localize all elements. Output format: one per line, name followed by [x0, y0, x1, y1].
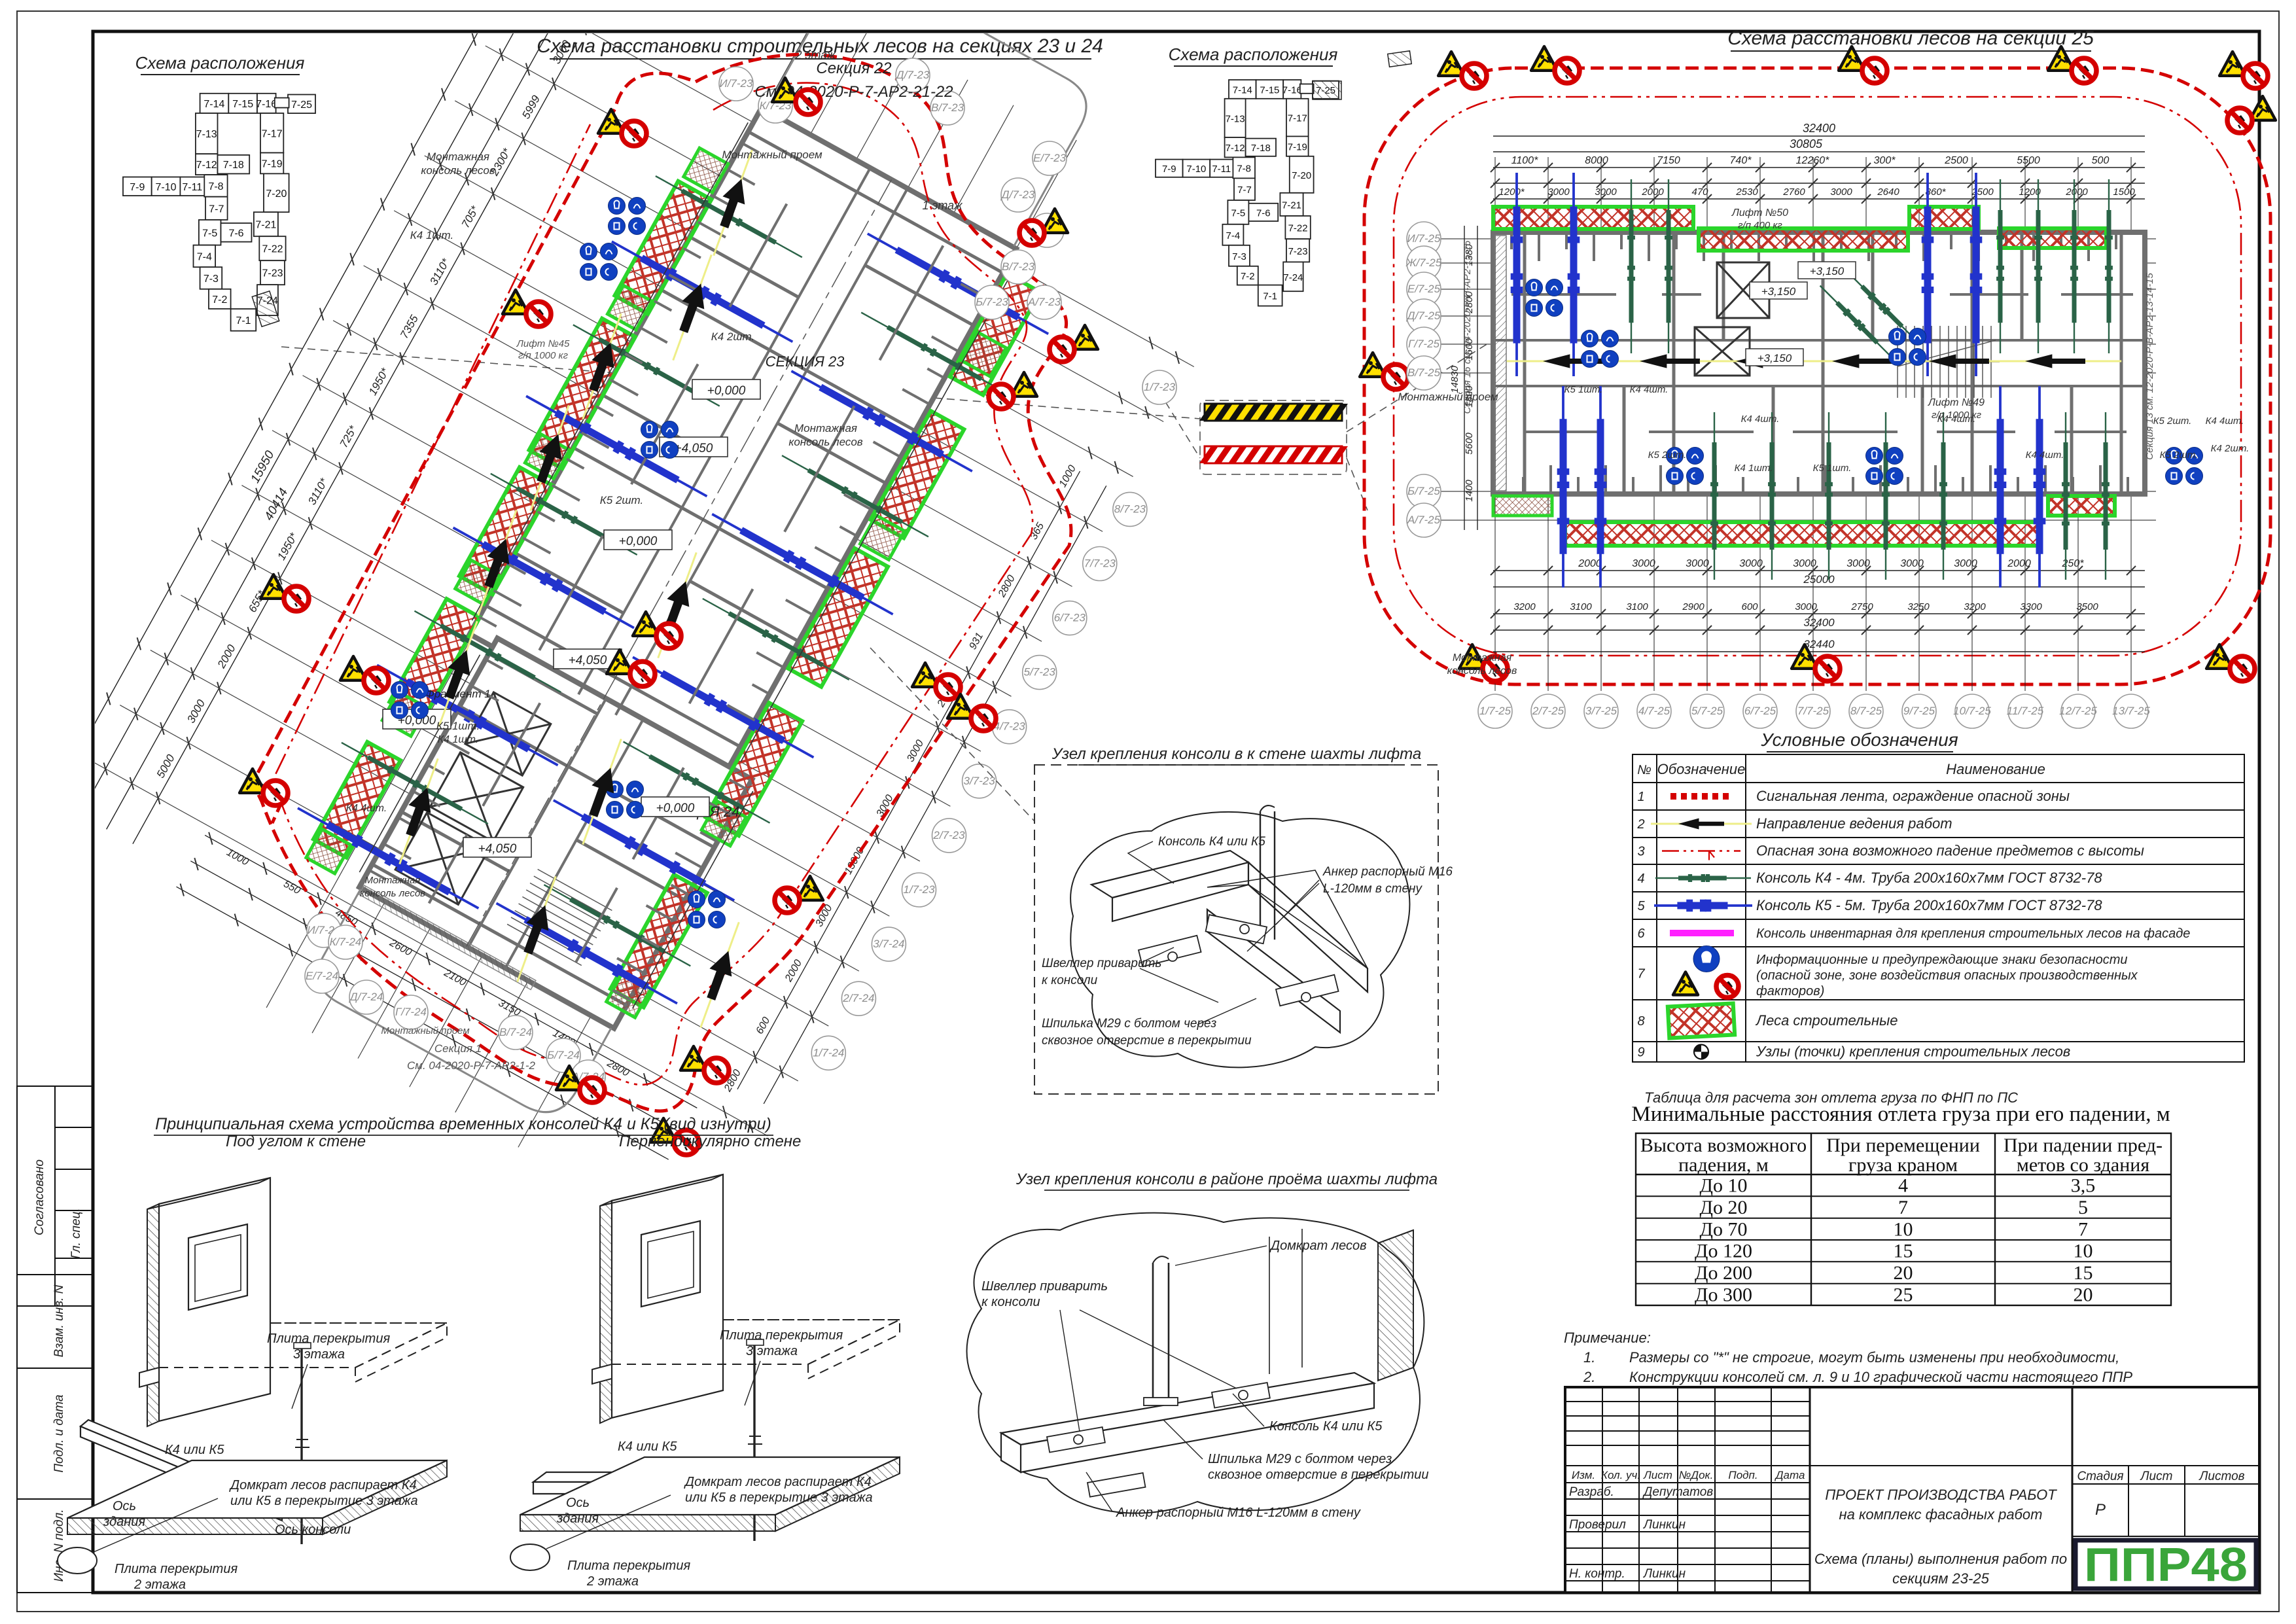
svg-text:Разраб.: Разраб. [1569, 1485, 1614, 1499]
svg-text:7-5: 7-5 [1231, 207, 1246, 219]
svg-text:Д/7-25: Д/7-25 [1406, 309, 1441, 322]
svg-text:К4 1шт.: К4 1шт. [438, 734, 479, 745]
svg-text:2750: 2750 [1850, 601, 1873, 612]
svg-text:13/7-25: 13/7-25 [2112, 705, 2150, 717]
svg-text:5500: 5500 [2017, 155, 2040, 166]
svg-text:К5 1шт.: К5 1шт. [1564, 384, 1603, 395]
svg-text:Под углом к стене: Под углом к стене [226, 1133, 366, 1150]
svg-text:Монтажный проем: Монтажный проем [722, 149, 822, 161]
svg-text:или К5 в перекрытие 3 этажа: или К5 в перекрытие 3 этажа [685, 1491, 873, 1505]
svg-text:До 200: До 200 [1695, 1262, 1752, 1284]
svg-text:метов со здания: метов со здания [2017, 1154, 2149, 1176]
svg-text:7-10: 7-10 [1186, 164, 1206, 175]
svg-text:1100*: 1100* [1511, 155, 1538, 166]
svg-text:Плита перекрытия: Плита перекрытия [267, 1332, 390, 1346]
svg-text:До 20: До 20 [1700, 1197, 1748, 1218]
svg-text:Лифт №49: Лифт №49 [1928, 397, 1985, 408]
svg-text:Б/7-23: Б/7-23 [976, 296, 1008, 308]
svg-text:25000: 25000 [1803, 573, 1835, 586]
svg-text:7-12: 7-12 [1226, 143, 1245, 154]
svg-text:К4 4шт.: К4 4шт. [1937, 414, 1976, 425]
svg-text:8/7-23: 8/7-23 [1114, 503, 1146, 515]
svg-text:Д/7-23: Д/7-23 [895, 69, 930, 81]
svg-text:Секция 13 см. 12-2020-Р-В-АР2: Секция 13 см. 12-2020-Р-В-АР2-13-14-15 [2144, 272, 2155, 459]
svg-text:К/7-24: К/7-24 [330, 936, 362, 948]
svg-text:3000: 3000 [1595, 186, 1617, 198]
svg-text:Дата: Дата [1775, 1469, 1805, 1481]
svg-text:Подл. и дата: Подл. и дата [52, 1394, 66, 1472]
svg-text:7-1: 7-1 [236, 315, 251, 327]
svg-text:3000: 3000 [1830, 186, 1852, 198]
svg-text:К5 1шт.: К5 1шт. [436, 720, 480, 732]
svg-text:Условные обозначения: Условные обозначения [1760, 730, 1958, 750]
svg-text:Принципиальная схема устройств: Принципиальная схема устройства временны… [155, 1115, 771, 1133]
svg-text:Узел крепления консоли в район: Узел крепления консоли в районе проёма ш… [1016, 1171, 1438, 1188]
svg-text:Проверил: Проверил [1569, 1518, 1626, 1532]
svg-text:7-8: 7-8 [208, 181, 223, 192]
svg-text:3000: 3000 [1793, 558, 1816, 569]
svg-text:сквозное отверстие в перекрыти: сквозное отверстие в перекрытии [1042, 1034, 1252, 1048]
svg-text:Плита перекрытия: Плита перекрытия [567, 1559, 690, 1573]
svg-text:1200*: 1200* [1498, 186, 1525, 198]
svg-text:5/7-25: 5/7-25 [1691, 705, 1723, 717]
svg-text:7-13: 7-13 [1226, 113, 1245, 124]
svg-text:Изм.: Изм. [1572, 1469, 1595, 1481]
svg-text:Монтажный проем: Монтажный проем [1398, 391, 1498, 403]
svg-text:5: 5 [1637, 899, 1645, 913]
svg-text:СЕКЦИЯ 23: СЕКЦИЯ 23 [766, 353, 845, 370]
svg-text:3200: 3200 [1964, 601, 1986, 612]
svg-text:7-11: 7-11 [1212, 164, 1231, 175]
svg-text:В/7-25: В/7-25 [1407, 366, 1441, 379]
svg-text:7-9: 7-9 [1162, 164, 1176, 175]
svg-text:Консоль инвентарная для крепле: Консоль инвентарная для крепления строит… [1756, 927, 2190, 941]
svg-text:+4,050: +4,050 [478, 842, 517, 856]
svg-text:груза краном: груза краном [1848, 1154, 1958, 1176]
svg-text:При перемещении: При перемещении [1826, 1135, 1980, 1156]
svg-text:3 этажа: 3 этажа [293, 1347, 345, 1362]
svg-text:3000: 3000 [1547, 186, 1570, 198]
svg-text:Схема расстановки лесов на сек: Схема расстановки лесов на секции 25 [1727, 27, 2094, 49]
svg-text:Г/7-25: Г/7-25 [1408, 338, 1440, 350]
svg-text:секциям 23-25: секциям 23-25 [1892, 1570, 1989, 1587]
svg-text:12260*: 12260* [1796, 155, 1829, 166]
svg-text:Е/7-23: Е/7-23 [1033, 152, 1067, 164]
svg-text:+3,150: +3,150 [1810, 265, 1845, 277]
svg-text:К4 4шт.: К4 4шт. [2026, 450, 2064, 461]
svg-text:7-23: 7-23 [1288, 246, 1308, 257]
svg-text:Секция 16 см. 04-2020-Р-П-АР2: Секция 16 см. 04-2020-Р-П-АР2-15-16 [1462, 240, 1473, 414]
svg-text:7-2: 7-2 [212, 294, 227, 306]
svg-text:2/7-23: 2/7-23 [932, 829, 965, 841]
svg-text:на комплекс фасадных работ: на комплекс фасадных работ [1839, 1506, 2043, 1523]
svg-text:3/7-24: 3/7-24 [873, 938, 904, 950]
svg-text:Высота возможного: Высота возможного [1640, 1135, 1807, 1156]
svg-text:До 70: До 70 [1700, 1218, 1748, 1240]
svg-text:7-2: 7-2 [1241, 271, 1255, 282]
svg-text:К5 2шт.: К5 2шт. [1648, 450, 1687, 461]
svg-text:2 этажа: 2 этажа [586, 1574, 639, 1589]
svg-text:7-23: 7-23 [262, 268, 283, 279]
svg-text:Ж/7-25: Ж/7-25 [1405, 256, 1442, 269]
svg-text:падения, м: падения, м [1678, 1154, 1769, 1176]
svg-text:3100: 3100 [1626, 601, 1648, 612]
svg-text:ПРОЕКТ ПРОИЗВОДСТВА РАБОТ: ПРОЕКТ ПРОИЗВОДСТВА РАБОТ [1825, 1487, 2057, 1503]
svg-text:12/7-25: 12/7-25 [2059, 705, 2097, 717]
svg-text:Домкрат лесов распирает К4: Домкрат лесов распирает К4 [229, 1478, 417, 1492]
svg-text:7-19: 7-19 [1288, 142, 1307, 153]
svg-text:Согласовано: Согласовано [33, 1159, 46, 1235]
svg-text:2000: 2000 [1641, 186, 1664, 198]
svg-text:7-17: 7-17 [262, 128, 283, 139]
svg-text:7-7: 7-7 [1237, 185, 1252, 196]
svg-text:Направление ведения работ: Направление ведения работ [1756, 815, 1952, 832]
svg-text:Сигнальная лента, ограждение о: Сигнальная лента, ограждение опасной зон… [1756, 788, 2070, 804]
svg-text:Г/7-24: Г/7-24 [395, 1006, 427, 1018]
svg-text:Опасная зона возможного падени: Опасная зона возможного падение предмето… [1756, 843, 2144, 859]
svg-text:4/7-25: 4/7-25 [1638, 705, 1670, 717]
svg-text:В/7-23: В/7-23 [931, 101, 964, 114]
svg-text:3000: 3000 [1632, 558, 1655, 569]
svg-text:Н. контр.: Н. контр. [1569, 1567, 1625, 1581]
svg-text:К5 1шт.: К5 1шт. [1813, 463, 1852, 474]
svg-text:7: 7 [1637, 967, 1645, 981]
svg-text:10: 10 [1894, 1218, 1913, 1240]
svg-text:7-12: 7-12 [196, 160, 217, 171]
svg-text:2900: 2900 [1682, 601, 1704, 612]
svg-text:факторов): факторов) [1756, 984, 1824, 998]
svg-text:Монтажный проем: Монтажный проем [381, 1025, 469, 1036]
svg-text:Линкин: Линкин [1642, 1518, 1686, 1532]
svg-text:3/7-25: 3/7-25 [1585, 705, 1617, 717]
svg-text:7-3: 7-3 [203, 274, 219, 285]
svg-text:Линкин: Линкин [1642, 1567, 1686, 1581]
svg-text:См. 04-2020-Р-7-АР2-1-2: См. 04-2020-Р-7-АР2-1-2 [407, 1059, 535, 1072]
svg-text:10: 10 [2074, 1241, 2093, 1262]
svg-text:к консоли: к консоли [981, 1295, 1040, 1309]
svg-text:7-7: 7-7 [209, 203, 224, 215]
svg-text:7-9: 7-9 [130, 182, 145, 193]
svg-text:7-19: 7-19 [262, 159, 283, 170]
svg-text:г/п 1000 кг: г/п 1000 кг [518, 350, 569, 361]
svg-text:Е/7-24: Е/7-24 [306, 970, 338, 982]
svg-text:2/7-25: 2/7-25 [1532, 705, 1564, 717]
svg-text:7-21: 7-21 [255, 220, 276, 231]
svg-text:К4 или К5: К4 или К5 [165, 1443, 224, 1457]
svg-text:+0,000: +0,000 [619, 535, 658, 548]
svg-text:Конструкции консолей см. л. 9: Конструкции консолей см. л. 9 и 10 графи… [1629, 1369, 2132, 1385]
svg-text:5: 5 [2078, 1197, 2088, 1218]
svg-text:До 10: До 10 [1700, 1175, 1748, 1197]
svg-text:7-14: 7-14 [1233, 84, 1252, 96]
svg-text:7-4: 7-4 [197, 251, 212, 262]
svg-text:Подп.: Подп. [1728, 1469, 1757, 1481]
svg-text:2500: 2500 [1944, 155, 1968, 166]
svg-text:(опасной зоне, зоне воздействи: (опасной зоне, зоне воздействия опасных … [1756, 968, 2138, 983]
svg-text:1.: 1. [1583, 1349, 1595, 1366]
svg-text:В/7-23: В/7-23 [1002, 260, 1035, 273]
svg-text:4: 4 [1637, 872, 1644, 886]
svg-text:сквозное отверстие в перекрыти: сквозное отверстие в перекрытии [1208, 1468, 1429, 1482]
svg-text:+3,150: +3,150 [1757, 352, 1792, 364]
svg-text:+0,000: +0,000 [707, 384, 746, 398]
svg-text:2 этажа: 2 этажа [133, 1578, 186, 1592]
svg-text:здания: здания [556, 1511, 599, 1526]
svg-text:3000: 3000 [1900, 558, 1924, 569]
svg-text:3000: 3000 [1954, 558, 1977, 569]
svg-text:7: 7 [1898, 1197, 1908, 1218]
svg-text:7-4: 7-4 [1226, 230, 1241, 241]
svg-text:1/7-23: 1/7-23 [903, 883, 935, 896]
svg-text:Ось: Ось [113, 1499, 136, 1513]
svg-text:1: 1 [1637, 790, 1644, 804]
svg-text:3 этажа: 3 этажа [746, 1344, 798, 1358]
svg-text:г/п 400 кг: г/п 400 кг [1738, 220, 1782, 231]
svg-text:здания: здания [103, 1515, 145, 1529]
svg-text:К4 4шт.: К4 4шт. [1741, 414, 1780, 425]
svg-text:Листов: Листов [2198, 1470, 2244, 1483]
svg-text:Монтажная: Монтажная [365, 875, 421, 886]
svg-text:14830: 14830 [1449, 365, 1460, 393]
svg-text:2.: 2. [1583, 1369, 1595, 1385]
svg-text:7-24: 7-24 [1283, 272, 1303, 283]
svg-text:Р: Р [2095, 1501, 2106, 1519]
svg-text:9/7-25: 9/7-25 [1903, 705, 1935, 717]
svg-text:К4 2шт.: К4 2шт. [711, 330, 754, 343]
svg-text:Консоль К5 - 5м. Труба 200х160: Консоль К5 - 5м. Труба 200х160х7мм ГОСТ … [1756, 897, 2102, 913]
svg-text:32400: 32400 [1803, 616, 1835, 629]
svg-text:или К5 в перекрытие 3 этажа: или К5 в перекрытие 3 этажа [230, 1494, 418, 1508]
svg-text:7-16: 7-16 [256, 99, 277, 110]
svg-text:7-10: 7-10 [155, 182, 176, 193]
svg-text:250*: 250* [2062, 558, 2085, 569]
svg-text:Размеры со "*" не строгие, мог: Размеры со "*" не строгие, могут быть из… [1629, 1349, 2119, 1366]
svg-text:8: 8 [1637, 1014, 1644, 1029]
svg-text:К4 1шт.: К4 1шт. [1735, 463, 1773, 474]
svg-text:3000: 3000 [1739, 558, 1763, 569]
svg-text:10/7-25: 10/7-25 [1953, 705, 1991, 717]
svg-text:Перпендикулярно стене: Перпендикулярно стене [619, 1133, 801, 1150]
svg-text:2760: 2760 [1782, 186, 1805, 198]
svg-text:Схема расположения: Схема расположения [135, 53, 305, 73]
svg-text:2 этаж: 2 этаж [794, 48, 836, 62]
svg-text:В/7-24: В/7-24 [499, 1026, 532, 1038]
svg-text:Лист: Лист [2140, 1470, 2173, 1483]
svg-text:7: 7 [2078, 1218, 2088, 1240]
svg-text:7-16: 7-16 [1282, 84, 1302, 96]
svg-text:7-18: 7-18 [223, 160, 244, 171]
svg-text:740*: 740* [1730, 155, 1752, 166]
svg-text:3000: 3000 [1846, 558, 1870, 569]
svg-text:Схема расположения: Схема расположения [1169, 44, 1338, 64]
svg-text:3000: 3000 [1686, 558, 1709, 569]
svg-text:Б/7-24: Б/7-24 [547, 1049, 580, 1061]
svg-text:Консоль К4 или К5: Консоль К4 или К5 [1158, 835, 1265, 849]
svg-text:к консоли: к консоли [1042, 974, 1098, 987]
svg-text:К4 4шт.: К4 4шт. [2206, 415, 2244, 427]
svg-text:2/7-24: 2/7-24 [842, 992, 874, 1004]
svg-text:При падении пред-: При падении пред- [2004, 1135, 2163, 1156]
svg-text:Лист: Лист [1643, 1469, 1672, 1481]
svg-text:9: 9 [1637, 1046, 1644, 1060]
svg-text:К4 2шт.: К4 2шт. [2211, 443, 2250, 454]
svg-text:7-11: 7-11 [182, 182, 202, 193]
svg-text:Плита перекрытия: Плита перекрытия [115, 1562, 238, 1576]
svg-text:32400: 32400 [1803, 122, 1835, 135]
svg-text:1/7-23: 1/7-23 [1144, 381, 1176, 393]
svg-text:Монтажная: Монтажная [794, 422, 857, 434]
svg-text:Швеллер приварить: Швеллер приварить [1042, 957, 1161, 970]
svg-text:И/7-23: И/7-23 [720, 77, 753, 90]
svg-text:7-18: 7-18 [1251, 143, 1271, 154]
svg-text:1500: 1500 [2113, 186, 2135, 198]
svg-text:15: 15 [2074, 1262, 2093, 1284]
svg-text:6: 6 [1637, 927, 1645, 941]
svg-text:7-15: 7-15 [1260, 84, 1279, 96]
svg-text:+4,050: +4,050 [569, 654, 607, 667]
svg-text:7-15: 7-15 [232, 99, 253, 110]
svg-text:20: 20 [1894, 1262, 1913, 1284]
svg-text:8000: 8000 [1585, 155, 1608, 166]
svg-text:7-14: 7-14 [203, 99, 224, 110]
svg-text:К4 4шт.: К4 4шт. [346, 803, 387, 814]
svg-text:Лифт №45: Лифт №45 [516, 338, 570, 349]
svg-text:Ось консоли: Ось консоли [275, 1523, 351, 1537]
svg-text:7-8: 7-8 [1237, 163, 1251, 174]
svg-text:Д/7-24: Д/7-24 [349, 991, 383, 1003]
svg-text:3,5: 3,5 [2071, 1175, 2096, 1197]
svg-text:7-1: 7-1 [1263, 291, 1277, 302]
svg-text:7-5: 7-5 [202, 228, 217, 239]
svg-text:консоль лесов: консоль лесов [788, 436, 862, 448]
svg-text:300*: 300* [1874, 155, 1896, 166]
svg-text:Кол. уч.: Кол. уч. [1601, 1469, 1640, 1481]
svg-text:7150: 7150 [1657, 155, 1680, 166]
svg-text:+3,150: +3,150 [1761, 285, 1796, 298]
svg-text:Обозначение: Обозначение [1657, 761, 1746, 777]
svg-text:консоль лесов: консоль лесов [1447, 665, 1517, 677]
svg-text:До 120: До 120 [1695, 1241, 1752, 1262]
svg-text:7-21: 7-21 [1282, 200, 1301, 211]
svg-text:Шпилька М29 с болтом через: Шпилька М29 с болтом через [1208, 1452, 1392, 1466]
svg-text:Анкер распорный М16: Анкер распорный М16 [1322, 865, 1453, 879]
svg-text:11/7-25: 11/7-25 [2007, 705, 2044, 717]
svg-text:3: 3 [1637, 845, 1644, 859]
svg-text:7-6: 7-6 [228, 228, 243, 239]
svg-text:К5 2шт.: К5 2шт. [2160, 450, 2199, 461]
svg-text:Леса строительные: Леса строительные [1755, 1012, 1898, 1029]
svg-text:Б/7-25: Б/7-25 [1407, 485, 1440, 497]
svg-text:Монтажная: Монтажная [1453, 652, 1512, 663]
svg-text:Секция 1: Секция 1 [434, 1042, 482, 1055]
svg-text:Д/7-23: Д/7-23 [1000, 188, 1035, 201]
svg-text:Узел крепления консоли в к сте: Узел крепления консоли в к стене шахты л… [1051, 745, 1421, 763]
svg-text:7-25: 7-25 [291, 99, 312, 111]
svg-text:К4 1шт.: К4 1шт. [410, 229, 453, 241]
svg-text:К5 2шт.: К5 2шт. [2153, 415, 2192, 427]
svg-text:№: № [1637, 763, 1651, 777]
svg-text:Е/7-25: Е/7-25 [1407, 283, 1441, 295]
svg-text:Минимальные расстояния отлета: Минимальные расстояния отлета груза при … [1631, 1103, 2170, 1126]
svg-text:3/7-23: 3/7-23 [963, 775, 995, 787]
svg-text:Взам. инв. N: Взам. инв. N [52, 1284, 66, 1357]
svg-text:4/7-23: 4/7-23 [993, 720, 1025, 733]
svg-text:2500: 2500 [1971, 186, 1994, 198]
svg-text:1400: 1400 [1464, 480, 1475, 502]
svg-text:7-20: 7-20 [1292, 170, 1311, 181]
svg-text:1 этаж: 1 этаж [922, 199, 963, 212]
svg-text:2000: 2000 [2007, 558, 2031, 569]
svg-text:Анкер распорный М16 L-120мм в: Анкер распорный М16 L-120мм в стену [1116, 1506, 1361, 1520]
svg-text:4: 4 [1898, 1175, 1908, 1197]
svg-text:Депутатов: Депутатов [1642, 1485, 1713, 1499]
svg-text:Примечание:: Примечание: [1564, 1330, 1651, 1346]
svg-text:ППР48: ППР48 [2084, 1539, 2248, 1591]
svg-text:30805: 30805 [1790, 137, 1823, 150]
svg-text:7-13: 7-13 [196, 129, 217, 140]
svg-text:Информационные и предупреждающ: Информационные и предупреждающие знаки б… [1756, 953, 2128, 967]
svg-text:И/7-25: И/7-25 [1407, 232, 1441, 245]
svg-text:Стадия: Стадия [2077, 1470, 2123, 1483]
svg-text:3200: 3200 [1513, 601, 1536, 612]
svg-text:Консоль К4 или К5: Консоль К4 или К5 [1269, 1419, 1383, 1434]
svg-text:Секция 22: Секция 22 [816, 60, 891, 77]
svg-text:Ось: Ось [566, 1496, 590, 1510]
svg-text:К4 или К5: К4 или К5 [618, 1439, 677, 1454]
svg-text:К5 2шт.: К5 2шт. [600, 494, 643, 506]
svg-text:3500: 3500 [2076, 601, 2098, 612]
svg-text:600: 600 [1741, 601, 1758, 612]
svg-text:Консоль К4 - 4м. Труба 200х160: Консоль К4 - 4м. Труба 200х160х7мм ГОСТ … [1756, 870, 2102, 886]
svg-text:7/7-25: 7/7-25 [1797, 705, 1829, 717]
svg-text:7/7-23: 7/7-23 [1084, 557, 1116, 570]
svg-text:+0,000: +0,000 [656, 802, 695, 815]
svg-text:Домкрат лесов распирает К4: Домкрат лесов распирает К4 [684, 1475, 872, 1489]
svg-text:2000: 2000 [2065, 186, 2088, 198]
svg-text:L-120мм в стену: L-120мм в стену [1323, 882, 1422, 896]
svg-text:7-22: 7-22 [1288, 223, 1308, 234]
svg-text:К4 4шт.: К4 4шт. [1630, 384, 1669, 395]
svg-text:5600: 5600 [1464, 432, 1475, 455]
svg-text:7-3: 7-3 [1232, 251, 1246, 262]
svg-text:470: 470 [1691, 186, 1708, 198]
svg-text:2530: 2530 [1735, 186, 1758, 198]
svg-text:7-6: 7-6 [1256, 207, 1271, 219]
svg-text:Швеллер приварить: Швеллер приварить [981, 1279, 1108, 1294]
svg-text:Узлы (точки) крепления строите: Узлы (точки) крепления строительных лесо… [1756, 1044, 2070, 1060]
svg-text:2: 2 [1636, 817, 1644, 832]
svg-text:15: 15 [1894, 1241, 1913, 1262]
svg-text:№Док.: №Док. [1679, 1469, 1714, 1481]
svg-text:1/7-24: 1/7-24 [813, 1046, 844, 1059]
svg-text:Наименование: Наименование [1946, 761, 2045, 777]
svg-text:Фрагмент 1: Фрагмент 1 [425, 688, 490, 700]
svg-text:6/7-23: 6/7-23 [1054, 612, 1086, 624]
svg-text:2640: 2640 [1877, 186, 1899, 198]
svg-text:консоль лесов: консоль лесов [360, 888, 425, 899]
svg-text:Шпилька М29 с болтом через: Шпилька М29 с болтом через [1042, 1017, 1216, 1031]
svg-text:А/7-23: А/7-23 [1027, 296, 1061, 308]
svg-text:8/7-25: 8/7-25 [1850, 705, 1882, 717]
svg-text:Гл. спец.: Гл. спец. [69, 1208, 83, 1258]
svg-text:Монтажная: Монтажная [427, 150, 489, 163]
svg-text:Плита перекрытия: Плита перекрытия [720, 1328, 843, 1343]
svg-text:7-20: 7-20 [266, 188, 287, 200]
svg-text:А/7-25: А/7-25 [1407, 514, 1441, 526]
svg-text:1/7-25: 1/7-25 [1479, 705, 1511, 717]
svg-text:3100: 3100 [1570, 601, 1592, 612]
svg-text:3000: 3000 [1795, 601, 1817, 612]
